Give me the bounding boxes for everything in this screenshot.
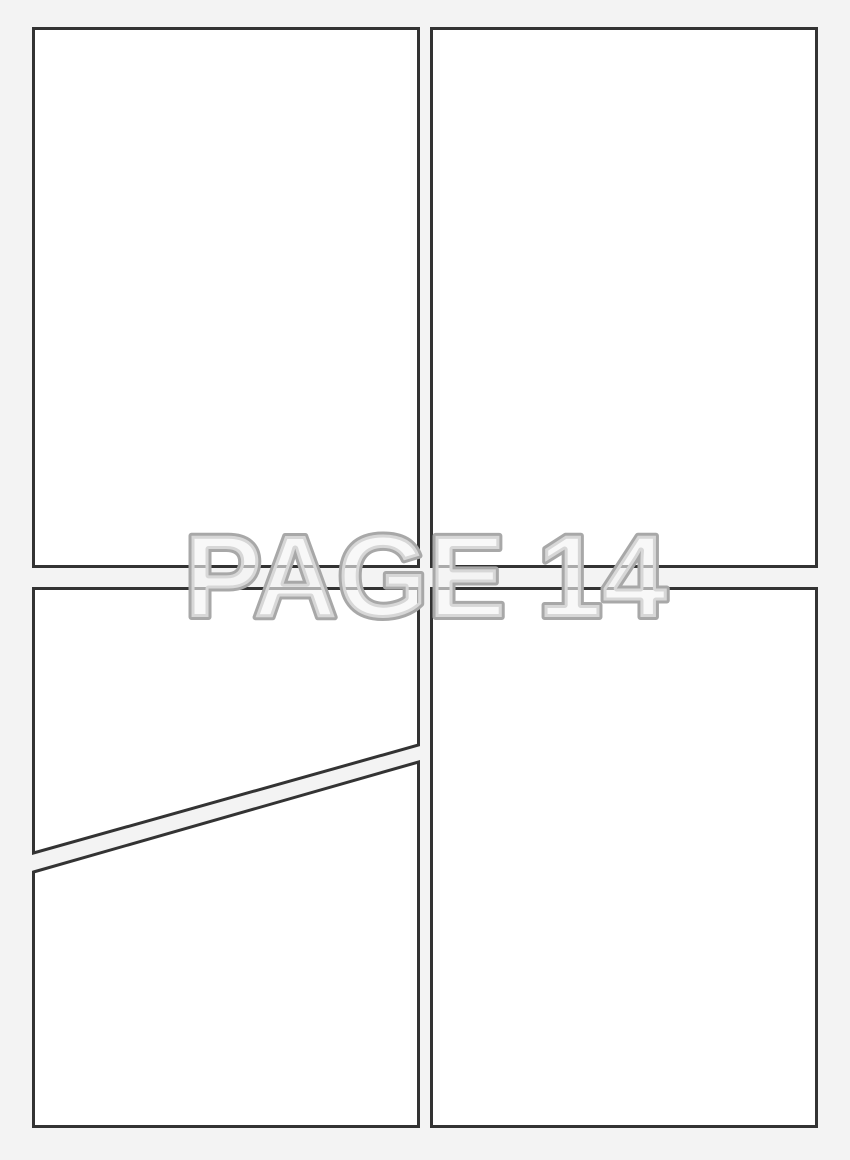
comic-page-template: PAGE 14: [0, 0, 850, 1160]
panel-bottom-right: [430, 587, 818, 1128]
panel-top-right: [430, 27, 818, 568]
panel-group-bottom-left: [32, 587, 420, 1128]
panel-top-left: [32, 27, 420, 568]
